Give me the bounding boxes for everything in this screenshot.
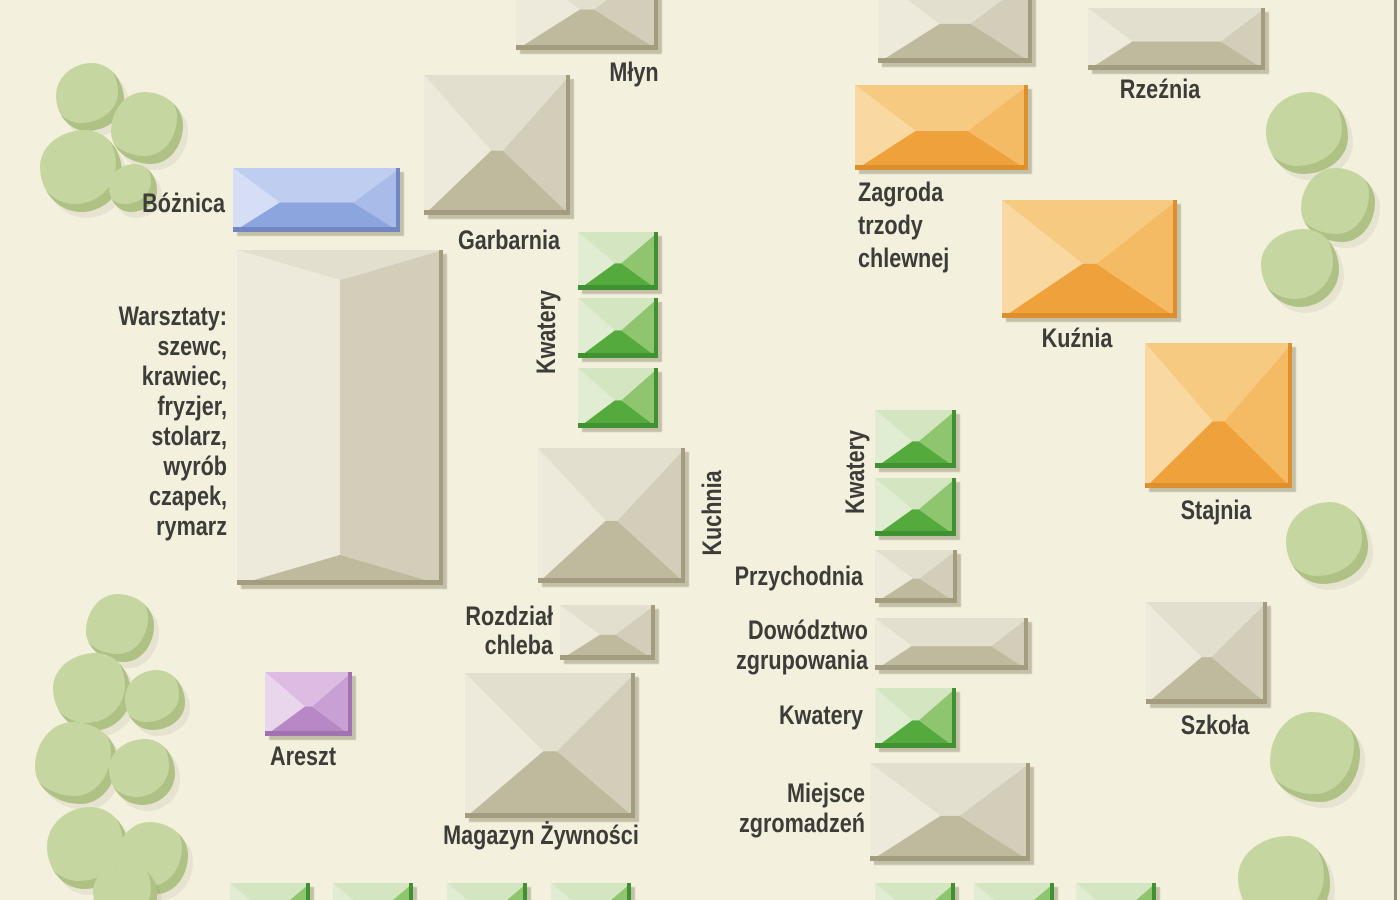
label-garbarnia: Garbarnia: [445, 225, 573, 255]
building-miejsce-zgromadzen: [870, 763, 1030, 861]
label-kuznia: Kuźnia: [1033, 323, 1122, 353]
building-edge: [1024, 85, 1028, 170]
building-edge: [654, 0, 658, 50]
building-edge: [1088, 65, 1265, 70]
camp-map: MłynRzeźniaBóżnicaGarbarniaWarsztaty: sz…: [0, 0, 1400, 900]
building-rozdzial-chleba: [560, 605, 655, 660]
label-text: Kwatery: [840, 430, 870, 514]
label-rzeznia: Rzeźnia: [1110, 74, 1211, 104]
building-edge: [578, 353, 658, 358]
building-edge: [578, 423, 658, 428]
label-text: Warsztaty: szewc, krawiec, fryzjer, stol…: [119, 301, 227, 541]
tree-icon: [53, 653, 131, 731]
building-kwatery-r1: [875, 410, 956, 468]
building-edge: [516, 45, 658, 50]
label-zagroda: Zagroda trzody chlewnej: [858, 176, 972, 275]
building-edge: [265, 731, 352, 736]
building-garbarnia: [424, 75, 570, 215]
label-text: Garbarnia: [458, 225, 560, 255]
building-kwatery-single: [875, 688, 956, 748]
building-kwatery-l1: [578, 232, 658, 290]
building-edge: [409, 883, 413, 900]
building-green-bottom-3: [447, 883, 527, 900]
building-edge: [1024, 618, 1028, 670]
building-edge: [952, 478, 956, 536]
building-edge: [1050, 883, 1054, 900]
building-kwatery-r2: [875, 478, 956, 536]
tree-icon: [1286, 502, 1368, 584]
building-rzeznia: [1088, 8, 1265, 70]
building-edge: [1261, 8, 1265, 70]
label-text: Przychodnia: [735, 561, 863, 591]
label-text: Kuźnia: [1042, 323, 1113, 353]
label-kwatery-right: Kwatery: [840, 419, 870, 524]
tree-icon: [1270, 712, 1360, 802]
building-edge: [651, 605, 655, 660]
label-areszt: Areszt: [262, 741, 345, 771]
building-edge: [439, 250, 443, 585]
label-szkola: Szkoła: [1172, 710, 1258, 740]
label-kwatery-single: Kwatery: [758, 700, 863, 730]
building-edge: [566, 75, 570, 215]
building-kwatery-l3: [578, 368, 658, 428]
building-areszt: [265, 672, 352, 736]
building-edge: [1028, 0, 1032, 63]
building-edge: [538, 578, 685, 583]
building-green-bottom-2: [333, 883, 413, 900]
building-edge: [855, 165, 1028, 170]
building-edge: [953, 550, 957, 603]
building-kuchnia: [538, 448, 685, 583]
building-edge: [952, 410, 956, 468]
label-magazyn-zywnosci: Magazyn Żywności: [419, 820, 664, 850]
building-edge: [348, 672, 352, 736]
tree-icon: [1266, 92, 1348, 174]
building-edge: [654, 232, 658, 290]
building-green-bottom-4: [551, 883, 631, 900]
building-edge: [560, 655, 655, 660]
building-edge: [627, 883, 631, 900]
building-edge: [237, 580, 443, 585]
building-edge: [952, 688, 956, 748]
label-text: Bóżnica: [142, 188, 225, 218]
tree-icon: [1238, 836, 1330, 900]
building-edge: [1146, 699, 1267, 704]
building-edge: [875, 531, 956, 536]
label-rozdzial-chleba: Rozdział chleba: [443, 602, 553, 660]
building-przychodnia: [875, 550, 957, 603]
building-edge: [1263, 602, 1267, 704]
building-edge: [875, 665, 1028, 670]
building-edge: [523, 883, 527, 900]
label-mlyn: Młyn: [603, 57, 665, 87]
label-text: Młyn: [609, 57, 658, 87]
building-mlyn: [516, 0, 658, 50]
building-edge: [465, 813, 635, 818]
building-green-bottom-6: [974, 883, 1054, 900]
label-text: Dowództwo zgrupowania: [736, 615, 868, 675]
building-zagroda: [855, 85, 1028, 170]
building-green-bottom-5: [875, 883, 955, 900]
building-edge: [631, 673, 635, 818]
building-kuznia: [1002, 200, 1177, 318]
building-edge: [1288, 343, 1292, 488]
building-edge: [681, 448, 685, 583]
building-unlabeled-top: [878, 0, 1032, 63]
building-edge: [654, 368, 658, 428]
building-edge: [654, 298, 658, 358]
building-edge: [878, 58, 1032, 63]
label-miejsce-zgromadzen: Miejsce zgromadzeń: [707, 778, 865, 838]
building-edge: [306, 883, 310, 900]
building-edge: [233, 227, 400, 232]
label-text: Stajnia: [1181, 495, 1252, 525]
label-text: Kuchnia: [697, 470, 727, 555]
tree-icon: [125, 670, 185, 730]
building-edge: [1002, 313, 1177, 318]
building-boznica: [233, 168, 400, 232]
label-text: Szkoła: [1181, 710, 1249, 740]
label-przychodnia: Przychodnia: [702, 561, 863, 591]
tree-icon: [40, 130, 122, 212]
label-text: Magazyn Żywności: [443, 820, 639, 850]
label-text: Rozdział chleba: [465, 602, 553, 660]
building-edge: [424, 210, 570, 215]
building-green-bottom-1: [230, 883, 310, 900]
label-text: Zagroda trzody chlewnej: [858, 176, 949, 275]
map-right-border: [1394, 0, 1397, 900]
label-text: Kwatery: [531, 290, 561, 374]
building-dowodztwo: [875, 618, 1028, 670]
building-edge: [1173, 200, 1177, 318]
building-edge: [396, 168, 400, 232]
building-edge: [875, 598, 957, 603]
building-edge: [1152, 883, 1156, 900]
building-magazyn-zywnosci: [465, 673, 635, 818]
tree-icon: [1261, 229, 1339, 307]
tree-icon: [111, 92, 183, 164]
label-text: Areszt: [270, 741, 336, 771]
building-edge: [875, 463, 956, 468]
tree-icon: [109, 739, 175, 805]
label-text: Miejsce zgromadzeń: [739, 778, 865, 838]
building-kwatery-l2: [578, 298, 658, 358]
label-kuchnia: Kuchnia: [697, 460, 727, 567]
building-edge: [870, 856, 1030, 861]
building-warsztaty: [237, 250, 443, 585]
label-kwatery-left: Kwatery: [531, 279, 561, 384]
building-szkola: [1146, 602, 1267, 704]
tree-icon: [35, 722, 117, 804]
building-edge: [951, 883, 955, 900]
label-boznica: Bóżnica: [121, 188, 225, 218]
building-stajnia: [1145, 343, 1292, 488]
label-stajnia: Stajnia: [1172, 495, 1261, 525]
tree-icon: [86, 594, 154, 662]
label-text: Rzeźnia: [1120, 74, 1200, 104]
label-warsztaty: Warsztaty: szewc, krawiec, fryzjer, stol…: [91, 301, 227, 541]
building-edge: [1145, 483, 1292, 488]
building-edge: [578, 285, 658, 290]
building-green-bottom-7: [1076, 883, 1156, 900]
label-dowodztwo: Dowództwo zgrupowania: [703, 615, 868, 675]
building-edge: [875, 743, 956, 748]
label-text: Kwatery: [779, 700, 863, 730]
building-edge: [1026, 763, 1030, 861]
